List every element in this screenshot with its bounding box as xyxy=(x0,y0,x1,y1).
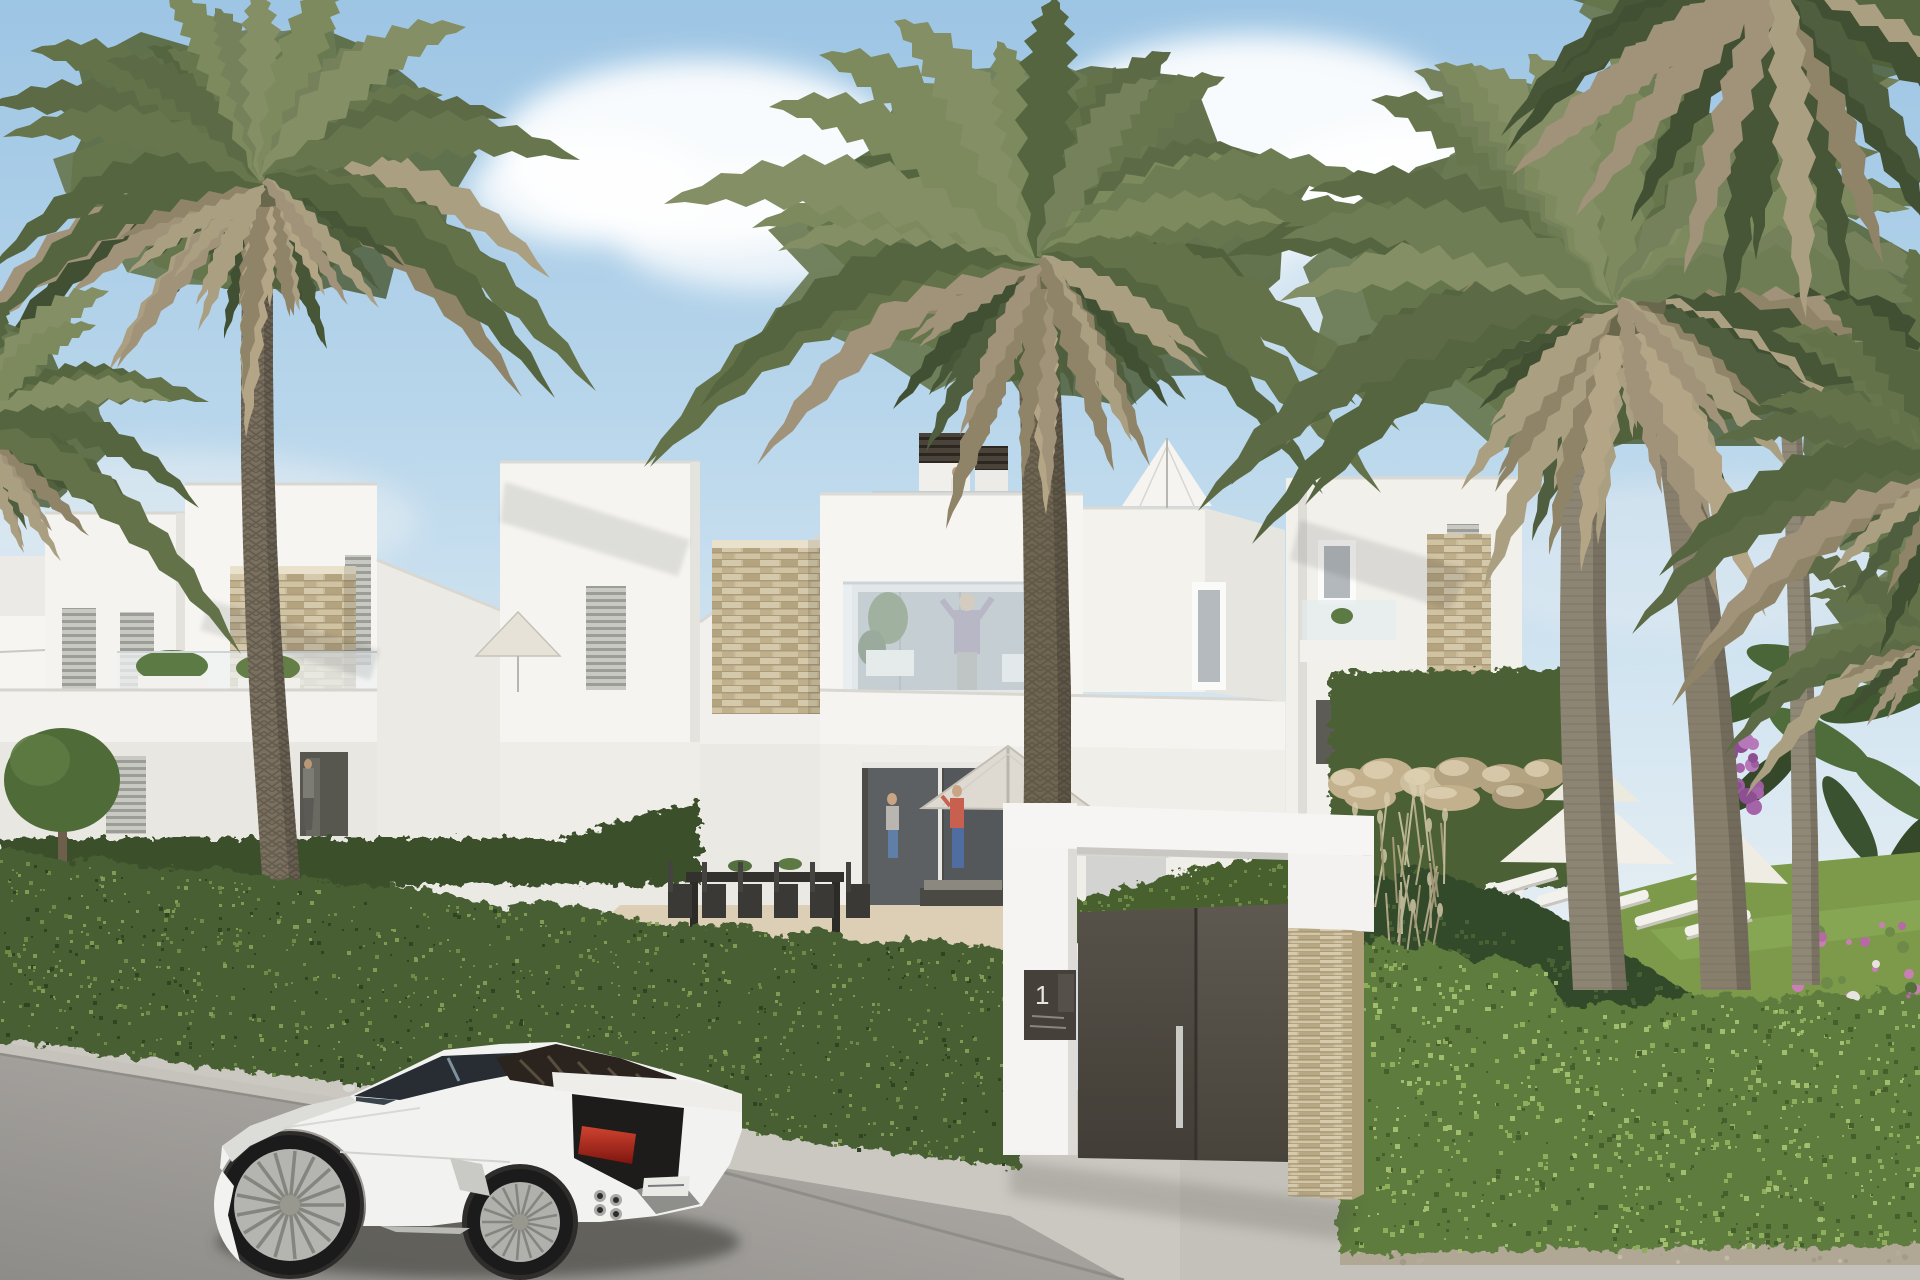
svg-text:1: 1 xyxy=(1035,980,1049,1010)
